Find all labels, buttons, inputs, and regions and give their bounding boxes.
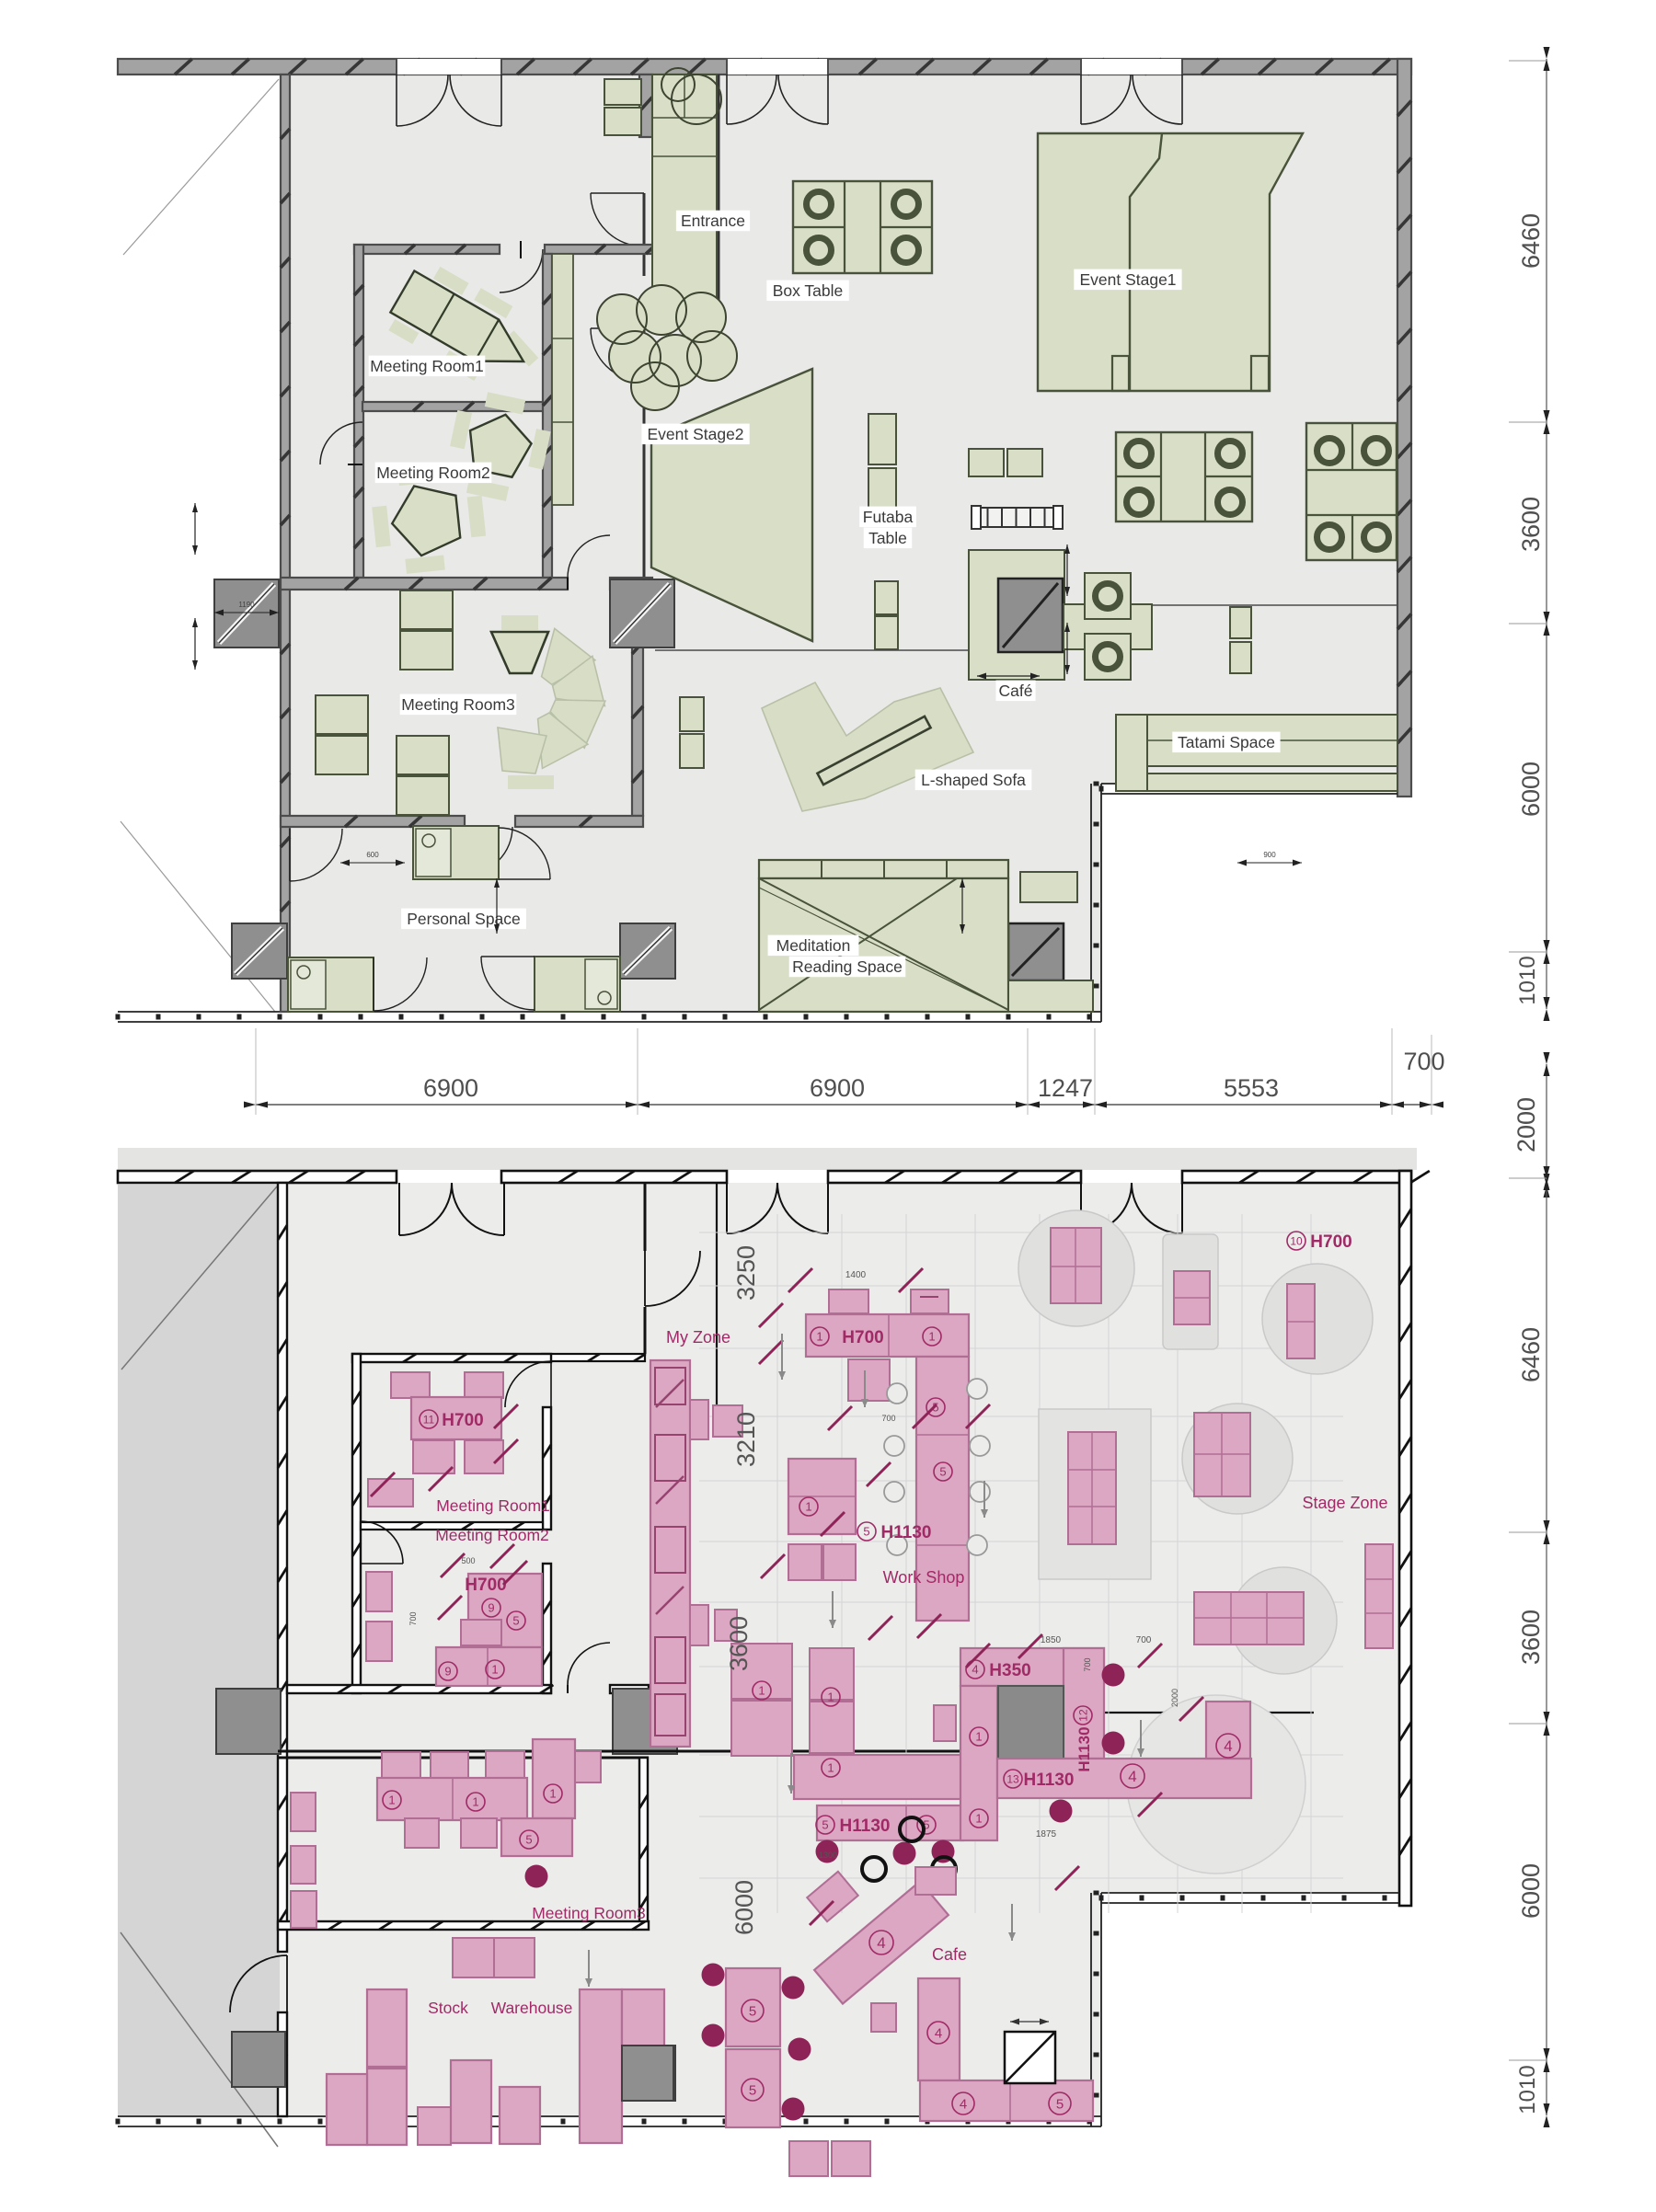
svg-text:Work Shop: Work Shop — [883, 1568, 965, 1587]
svg-text:Personal Space: Personal Space — [407, 910, 521, 928]
svg-text:1300: 1300 — [819, 1851, 837, 1860]
svg-text:3250: 3250 — [732, 1245, 760, 1301]
svg-text:4: 4 — [1128, 1768, 1136, 1785]
svg-text:1400: 1400 — [845, 1270, 867, 1280]
svg-text:Meeting Room1: Meeting Room1 — [370, 357, 484, 375]
svg-text:Stock: Stock — [428, 1999, 468, 2017]
svg-text:Table: Table — [868, 529, 907, 547]
svg-text:4: 4 — [960, 2096, 967, 2112]
svg-text:1247: 1247 — [1038, 1074, 1093, 1102]
svg-text:Cafe: Cafe — [932, 1945, 967, 1964]
svg-text:11: 11 — [423, 1413, 435, 1426]
svg-text:6000: 6000 — [730, 1880, 758, 1935]
svg-text:1875: 1875 — [1036, 1829, 1057, 1840]
svg-text:6900: 6900 — [423, 1074, 478, 1102]
svg-text:6460: 6460 — [1517, 1327, 1545, 1382]
svg-text:My Zone: My Zone — [666, 1328, 730, 1347]
svg-text:4: 4 — [972, 1663, 978, 1677]
svg-text:4: 4 — [877, 1934, 885, 1952]
svg-text:6900: 6900 — [810, 1074, 865, 1102]
svg-text:Meditation: Meditation — [776, 936, 851, 955]
svg-text:1: 1 — [491, 1663, 498, 1677]
svg-text:3600: 3600 — [725, 1616, 753, 1671]
svg-text:H1130: H1130 — [1024, 1771, 1075, 1790]
svg-text:500: 500 — [461, 1556, 475, 1565]
svg-text:700: 700 — [881, 1414, 895, 1423]
svg-text:5: 5 — [822, 1818, 828, 1832]
svg-text:700: 700 — [1136, 1635, 1152, 1645]
svg-text:Event Stage2: Event Stage2 — [647, 425, 743, 443]
svg-text:H700: H700 — [842, 1328, 883, 1347]
svg-text:H1130: H1130 — [881, 1523, 932, 1542]
svg-text:1: 1 — [975, 1730, 982, 1744]
svg-text:12: 12 — [1076, 1709, 1089, 1722]
svg-text:1010: 1010 — [1515, 956, 1540, 1004]
svg-text:1: 1 — [816, 1330, 822, 1344]
svg-text:5: 5 — [749, 2082, 756, 2098]
svg-text:Café: Café — [999, 682, 1033, 700]
svg-text:9: 9 — [488, 1601, 494, 1615]
svg-text:H350: H350 — [989, 1661, 1030, 1680]
svg-text:1: 1 — [549, 1787, 556, 1801]
svg-text:600: 600 — [366, 851, 379, 859]
svg-text:Meeting Room1: Meeting Room1 — [436, 1496, 550, 1515]
svg-text:5: 5 — [512, 1614, 519, 1628]
svg-text:5: 5 — [863, 1525, 869, 1539]
svg-text:3210: 3210 — [732, 1412, 760, 1467]
svg-text:1: 1 — [388, 1794, 395, 1807]
svg-text:1: 1 — [928, 1330, 935, 1344]
svg-text:5: 5 — [749, 2003, 756, 2019]
svg-text:Warehouse: Warehouse — [491, 1999, 573, 2017]
svg-text:1: 1 — [805, 1500, 811, 1514]
svg-text:Entrance: Entrance — [681, 212, 745, 230]
svg-text:6000: 6000 — [1517, 1863, 1545, 1919]
svg-text:13: 13 — [1006, 1772, 1019, 1785]
svg-text:3600: 3600 — [1517, 1610, 1545, 1665]
svg-text:3600: 3600 — [1517, 497, 1545, 552]
svg-text:4: 4 — [935, 2025, 942, 2041]
svg-text:4: 4 — [1224, 1737, 1232, 1755]
svg-text:1190: 1190 — [238, 601, 255, 609]
svg-text:Futaba: Futaba — [863, 508, 914, 526]
svg-text:9: 9 — [444, 1665, 451, 1679]
svg-text:700: 700 — [1083, 1657, 1092, 1671]
svg-text:5553: 5553 — [1224, 1074, 1279, 1102]
svg-text:L-shaped Sofa: L-shaped Sofa — [921, 771, 1026, 789]
svg-text:10: 10 — [1290, 1234, 1303, 1247]
svg-text:1850: 1850 — [1041, 1635, 1062, 1645]
svg-text:Stage Zone: Stage Zone — [1302, 1494, 1387, 1512]
svg-text:2000: 2000 — [1170, 1689, 1179, 1707]
svg-text:Meeting Room2: Meeting Room2 — [376, 464, 490, 482]
svg-text:6460: 6460 — [1517, 213, 1545, 269]
svg-text:H700: H700 — [465, 1576, 506, 1595]
svg-text:700: 700 — [408, 1611, 418, 1625]
svg-text:1: 1 — [472, 1795, 478, 1809]
svg-text:Box Table: Box Table — [773, 281, 844, 300]
svg-text:H700: H700 — [1310, 1232, 1351, 1252]
svg-text:1010: 1010 — [1515, 2065, 1540, 2114]
svg-text:5: 5 — [939, 1465, 946, 1479]
svg-text:H1130: H1130 — [840, 1817, 891, 1836]
svg-text:2000: 2000 — [1512, 1097, 1540, 1152]
svg-text:Meeting Room2: Meeting Room2 — [435, 1526, 549, 1544]
svg-text:1: 1 — [827, 1691, 834, 1704]
svg-text:Tatami Space: Tatami Space — [1178, 733, 1275, 751]
svg-text:900: 900 — [1263, 851, 1276, 859]
svg-text:1: 1 — [758, 1684, 765, 1698]
svg-text:1: 1 — [827, 1761, 834, 1775]
svg-text:Event Stage1: Event Stage1 — [1079, 270, 1176, 289]
svg-text:H700: H700 — [442, 1411, 483, 1430]
svg-text:Meeting Room3: Meeting Room3 — [401, 695, 515, 714]
svg-text:1: 1 — [975, 1812, 982, 1826]
svg-text:H1130: H1130 — [1075, 1726, 1093, 1771]
svg-text:6000: 6000 — [1517, 762, 1545, 817]
svg-text:5: 5 — [1056, 2096, 1064, 2112]
svg-text:Meeting Room3: Meeting Room3 — [532, 1904, 646, 1922]
svg-text:Reading Space: Reading Space — [792, 957, 903, 976]
svg-text:5: 5 — [525, 1833, 532, 1847]
svg-text:700: 700 — [1403, 1048, 1444, 1075]
